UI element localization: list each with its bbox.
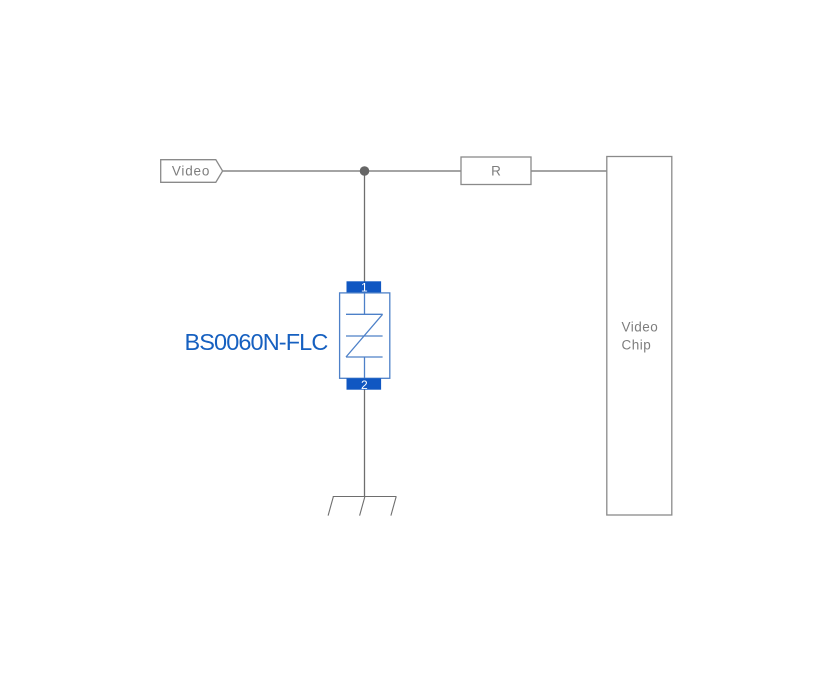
svg-text:Video: Video — [622, 320, 659, 335]
svg-text:Video: Video — [172, 164, 210, 179]
svg-text:2: 2 — [361, 378, 368, 392]
svg-text:BS0060N-FLC: BS0060N-FLC — [185, 329, 329, 355]
svg-text:Chip: Chip — [622, 338, 652, 353]
svg-text:R: R — [491, 164, 501, 179]
